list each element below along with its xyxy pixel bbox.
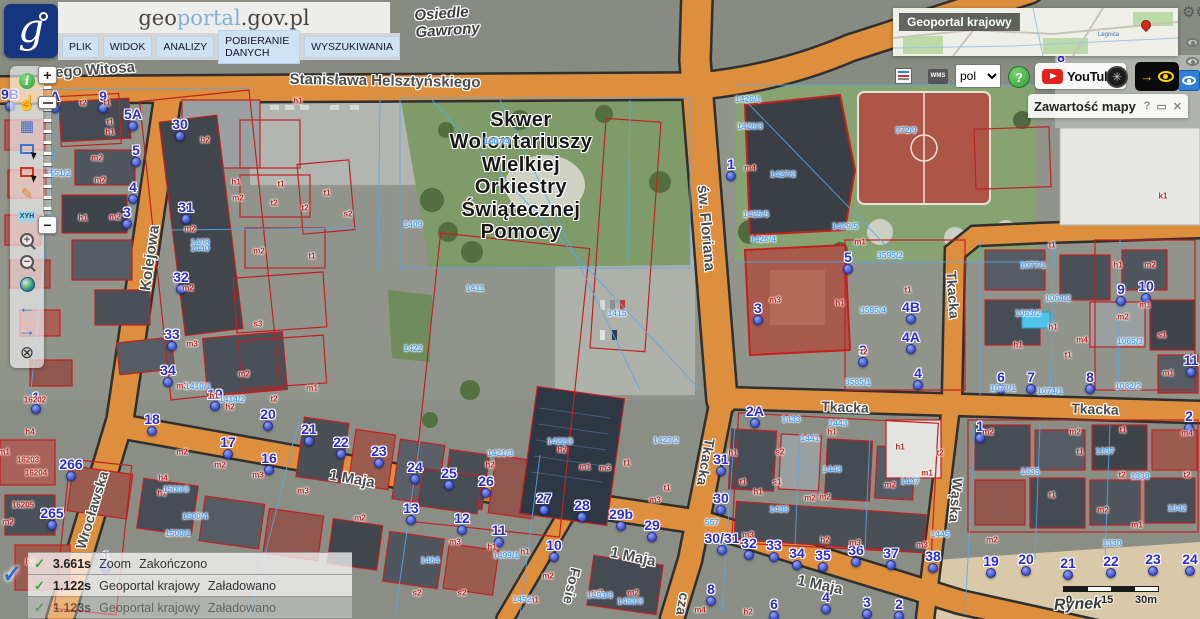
- legend-row-blue: [898, 71, 909, 73]
- title-govpl: .gov.pl: [241, 6, 310, 30]
- tool-attribute-table-icon[interactable]: ▦: [16, 117, 38, 137]
- tool-next-view-icon[interactable]: →: [16, 320, 38, 340]
- status-check-icon: ✓: [34, 578, 45, 594]
- status-time: 1.122s: [53, 579, 91, 593]
- overview-title: Geoportal krajowy: [899, 13, 1020, 31]
- status-log: ✓3.661sZoomZakończono✓1.122sGeoportal kr…: [28, 552, 352, 618]
- wms-button[interactable]: WMS: [928, 69, 948, 84]
- status-source: Geoportal krajowy: [99, 579, 200, 593]
- status-state: Załadowano: [208, 601, 276, 615]
- menu-item-widok[interactable]: WIDOK: [103, 36, 153, 58]
- menu-item-pobieranie-danych[interactable]: POBIERANIE DANYCH: [218, 30, 300, 64]
- settings-gear-icon[interactable]: ⚙⚙: [1182, 3, 1200, 21]
- title-geo: geo: [138, 6, 177, 30]
- overview-minimap[interactable]: Geoportal krajowy Legnica: [893, 8, 1178, 56]
- map-viewport[interactable]: Stanisława Helsztyńskiegoego WitosaKolej…: [0, 0, 1200, 619]
- tool-info-icon[interactable]: i: [16, 71, 38, 91]
- status-state: Załadowano: [208, 579, 276, 593]
- status-time: 1.123s: [53, 601, 91, 615]
- zoom-slider-handle[interactable]: [38, 96, 57, 109]
- status-state: Zakończono: [139, 557, 207, 571]
- map-content-panel-header[interactable]: Zawartość mapy ? ▭ ✕: [1028, 94, 1188, 118]
- arrow-icon: →: [1141, 69, 1154, 84]
- legend-row-gray: [898, 78, 909, 80]
- panel-help-button[interactable]: ?: [1144, 100, 1151, 112]
- tool-full-extent-globe-icon[interactable]: [16, 275, 38, 295]
- logo-orbit-icon: [39, 12, 48, 21]
- aerial-basemap: [0, 0, 1200, 619]
- title-portal: portal: [177, 6, 241, 30]
- zoom-slider: + −: [38, 66, 58, 234]
- menu-item-plik[interactable]: PLIK: [62, 36, 99, 58]
- visibility-blue-button[interactable]: [1178, 70, 1200, 91]
- eye-icon: [1182, 76, 1196, 85]
- help-button[interactable]: ?: [1008, 66, 1030, 88]
- tool-select-rect-red-icon[interactable]: [16, 162, 38, 182]
- panel-close-button[interactable]: ✕: [1173, 100, 1182, 113]
- layer-eye-icon-1[interactable]: [1186, 38, 1199, 47]
- legend-row-red: [898, 75, 909, 77]
- tool-pan-hand-icon[interactable]: ☝: [16, 94, 38, 114]
- status-source: Geoportal krajowy: [99, 601, 200, 615]
- status-source: Zoom: [99, 557, 131, 571]
- yellow-eye-icon: [1158, 71, 1174, 82]
- tool-clear-selection-icon[interactable]: ⊗: [16, 343, 38, 363]
- tool-draw-pencil-icon[interactable]: ✎: [16, 184, 38, 204]
- map-loaded-check-icon: ✓: [2, 560, 28, 586]
- zoom-out-button[interactable]: −: [38, 216, 57, 234]
- tool-zoom-out-icon[interactable]: −: [16, 252, 38, 272]
- tool-zoom-in-icon[interactable]: +: [16, 230, 38, 250]
- scale-label: 15: [1101, 594, 1113, 606]
- tool-previous-view-icon[interactable]: ←: [16, 297, 38, 317]
- scale-bar-segments: [1063, 586, 1159, 592]
- show-hide-panel-button[interactable]: →: [1135, 62, 1179, 91]
- tool-select-rect-blue-icon[interactable]: [16, 139, 38, 159]
- main-menu: PLIKWIDOKANALIZYPOBIERANIE DANYCHWYSZUKI…: [58, 33, 400, 60]
- status-check-icon: ✓: [34, 600, 45, 616]
- zoom-in-button[interactable]: +: [38, 66, 57, 84]
- panel-maximize-button[interactable]: ▭: [1156, 100, 1166, 113]
- tool-coordinates-xyh-icon[interactable]: XYH: [16, 207, 38, 227]
- youtube-play-icon: [1042, 69, 1063, 84]
- status-log-row: ✓3.661sZoomZakończono: [28, 552, 352, 574]
- status-log-row: ✓1.123sGeoportal krajowyZaładowano: [28, 596, 352, 618]
- language-select[interactable]: pol: [955, 64, 1001, 88]
- overview-place-label: Legnica: [1098, 32, 1119, 38]
- geoportal-logo[interactable]: g: [4, 4, 58, 58]
- scale-label: 0: [1066, 594, 1072, 606]
- wheel-icon: ✳: [1112, 70, 1122, 84]
- panel-title: Zawartość mapy: [1034, 99, 1138, 114]
- layer-eye-icon-2[interactable]: [1186, 57, 1199, 66]
- menu-item-analizy[interactable]: ANALIZY: [156, 36, 214, 58]
- scale-bar: 01530m: [1063, 586, 1163, 612]
- status-time: 3.661s: [53, 557, 91, 571]
- menu-item-wyszukiwania[interactable]: WYSZUKIWANIA: [304, 36, 400, 58]
- wheel-button[interactable]: ✳: [1106, 66, 1128, 88]
- status-log-row: ✓1.122sGeoportal krajowyZaładowano: [28, 574, 352, 596]
- status-check-icon: ✓: [34, 556, 45, 572]
- scale-label: 30m: [1135, 594, 1157, 606]
- legend-button[interactable]: [895, 68, 912, 84]
- site-title: geoportal.gov.pl: [58, 2, 390, 33]
